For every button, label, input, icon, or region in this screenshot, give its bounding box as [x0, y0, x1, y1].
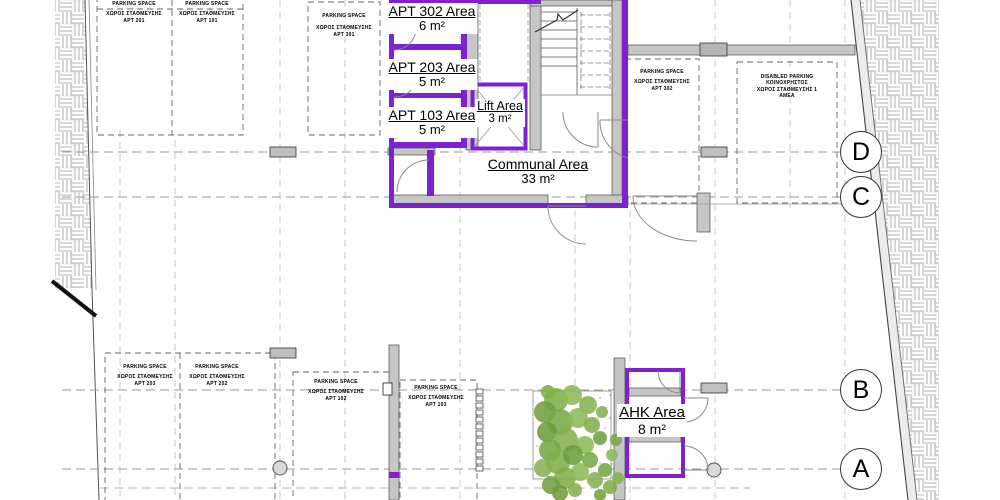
parking-label-apt103: PARKING SPACE ΧΩΡΟΣ ΣΤΑΘΜΕΥΣΗΣ APT 103 — [408, 385, 464, 408]
columns — [270, 43, 727, 393]
parking-label-apt301: PARKING SPACE ΧΩΡΟΣ ΣΤΑΘΜΕΥΣΗΣ APT 301 — [316, 13, 372, 38]
room-title: AHK Area — [619, 404, 685, 421]
grid-bubble-d: D — [840, 131, 882, 173]
room-title: APT 103 Area — [389, 107, 476, 123]
room-title: Lift Area — [477, 99, 523, 113]
parking-label-disabled: DISABLED PARKING ΚΟΙΝΟΧΡΗΣΤΟΣ ΧΩΡΟΣ ΣΤΑΘ… — [757, 74, 817, 99]
grid-bubble-c: C — [840, 176, 882, 218]
wall-fitting — [383, 383, 392, 395]
plan-linework — [0, 0, 1000, 500]
parking-label-apt101: PARKING SPACE ΧΩΡΟΣ ΣΤΑΘΜΕΥΣΗΣ APT 101 — [179, 1, 235, 24]
parking-label-apt201: PARKING SPACE ΧΩΡΟΣ ΣΤΑΘΜΕΥΣΗΣ APT 201 — [106, 1, 162, 24]
room-title: APT 203 Area — [389, 59, 476, 75]
parking-label-apt202: PARKING SPACE ΧΩΡΟΣ ΣΤΑΘΜΕΥΣΗΣ APT 202 — [189, 364, 245, 387]
left-pavement-hatch — [55, 0, 99, 500]
parking-label-apt203: PARKING SPACE ΧΩΡΟΣ ΣΤΑΘΜΕΥΣΗΣ APT 203 — [117, 364, 173, 387]
room-title: Communal Area — [488, 156, 588, 172]
room-label-apt302: APT 302 Area 6 m² — [387, 3, 478, 34]
room-area: 6 m² — [389, 19, 476, 34]
room-area: 33 m² — [488, 172, 588, 187]
floor-plan-canvas: APT 302 Area 6 m² APT 203 Area 5 m² APT … — [0, 0, 1000, 500]
right-pavement-hatch — [851, 0, 939, 500]
parking-label-apt102: PARKING SPACE ΧΩΡΟΣ ΣΤΑΘΜΕΥΣΗΣ APT 102 — [308, 379, 364, 402]
parking-label-apt302: PARKING SPACE ΧΩΡΟΣ ΣΤΑΘΜΕΥΣΗΣ APT 302 — [634, 69, 690, 92]
room-title: APT 302 Area — [389, 3, 476, 19]
room-label-apt103: APT 103 Area 5 m² — [387, 107, 478, 138]
room-label-ahk: AHK Area 8 m² — [617, 404, 687, 437]
room-label-lift: Lift Area 3 m² — [475, 99, 525, 127]
room-label-communal: Communal Area 33 m² — [486, 156, 590, 187]
room-area: 3 m² — [477, 113, 523, 126]
room-area: 5 m² — [389, 75, 476, 90]
room-area: 8 m² — [619, 421, 685, 437]
room-area: 5 m² — [389, 123, 476, 138]
staircase — [535, 8, 612, 95]
room-label-apt203: APT 203 Area 5 m² — [387, 59, 478, 90]
grid-bubble-a: A — [840, 448, 882, 490]
grid-bubble-b: B — [840, 369, 882, 411]
lobby-dashed-edges — [480, 4, 528, 82]
louvre-strip — [476, 389, 483, 471]
